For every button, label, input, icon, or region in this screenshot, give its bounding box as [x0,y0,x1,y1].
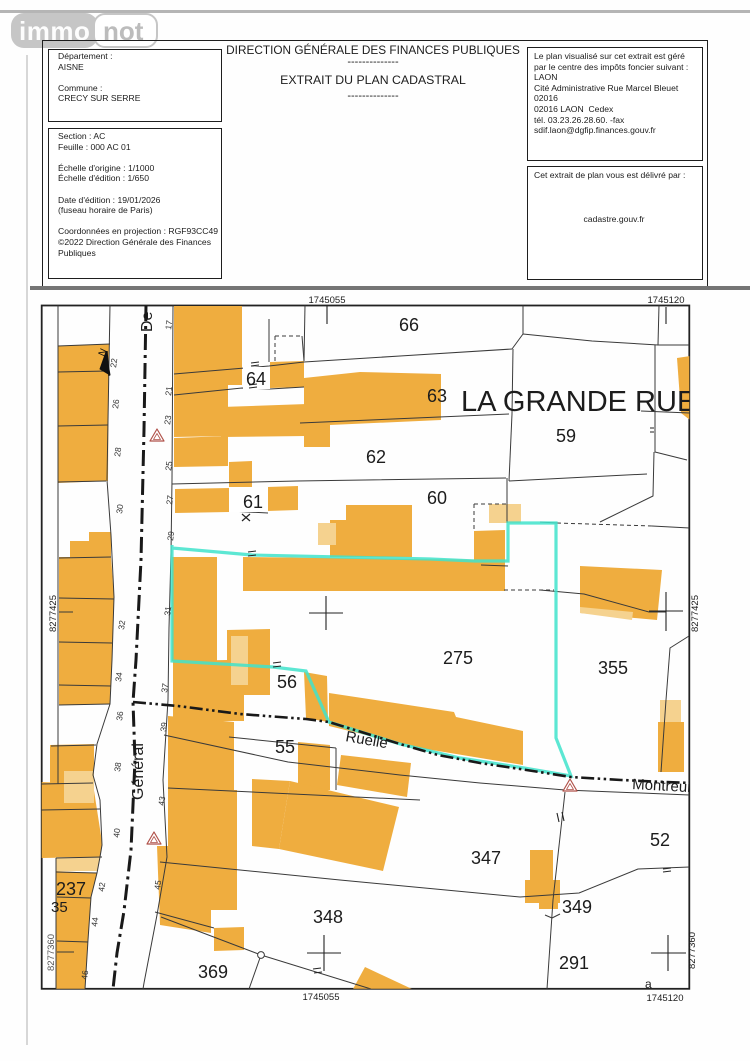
svg-text:a: a [645,977,652,991]
svg-text:30: 30 [114,503,125,514]
svg-text:35: 35 [51,899,68,916]
svg-text:17: 17 [163,319,174,330]
svg-text:44: 44 [89,916,100,927]
svg-text:Général: Général [130,743,147,800]
svg-text:Montreuil: Montreuil [632,776,695,796]
svg-text:De: De [139,311,156,332]
svg-text:8277425: 8277425 [690,595,701,632]
svg-text:52: 52 [650,830,670,850]
svg-text:23: 23 [162,414,173,425]
svg-text:56: 56 [277,672,297,692]
svg-text:31: 31 [162,605,173,616]
svg-text:1745120: 1745120 [648,295,685,306]
svg-text:1745120: 1745120 [647,993,684,1004]
svg-text:347: 347 [471,848,501,868]
svg-text:348: 348 [313,907,343,927]
svg-text:28: 28 [112,446,123,457]
svg-text:64: 64 [246,369,266,389]
svg-text:21: 21 [163,385,174,396]
svg-text:43: 43 [156,795,167,806]
svg-text:60: 60 [427,488,447,508]
svg-text:46: 46 [79,969,90,980]
svg-text:8277425: 8277425 [48,595,59,632]
svg-text:1745055: 1745055 [309,295,346,306]
svg-text:LA GRANDE RUE: LA GRANDE RUE [461,386,696,418]
svg-text:40: 40 [111,827,122,838]
svg-text:1745055: 1745055 [303,992,340,1003]
svg-text:29: 29 [165,530,176,541]
svg-text:34: 34 [113,671,124,682]
svg-text:8277360: 8277360 [46,934,57,971]
svg-text:38: 38 [112,761,123,772]
svg-text:22: 22 [108,357,119,368]
svg-text:42: 42 [96,881,107,892]
svg-text:26: 26 [110,398,121,409]
svg-text:39: 39 [158,721,169,732]
svg-text:45: 45 [152,879,163,890]
svg-text:32: 32 [116,619,127,630]
svg-text:36: 36 [114,710,125,721]
svg-text:55: 55 [275,737,295,757]
svg-text:369: 369 [198,962,228,982]
svg-text:27: 27 [164,494,175,505]
svg-text:37: 37 [159,682,170,693]
svg-text:349: 349 [562,897,592,917]
svg-text:61: 61 [243,492,263,512]
svg-text:237: 237 [56,879,86,899]
svg-text:59: 59 [556,426,576,446]
svg-text:355: 355 [598,658,628,678]
svg-text:25: 25 [163,460,174,471]
svg-text:66: 66 [399,315,419,335]
svg-text:8277360: 8277360 [687,932,698,969]
svg-text:62: 62 [366,447,386,467]
svg-text:63: 63 [427,386,447,406]
svg-text:291: 291 [559,953,589,973]
svg-text:275: 275 [443,648,473,668]
